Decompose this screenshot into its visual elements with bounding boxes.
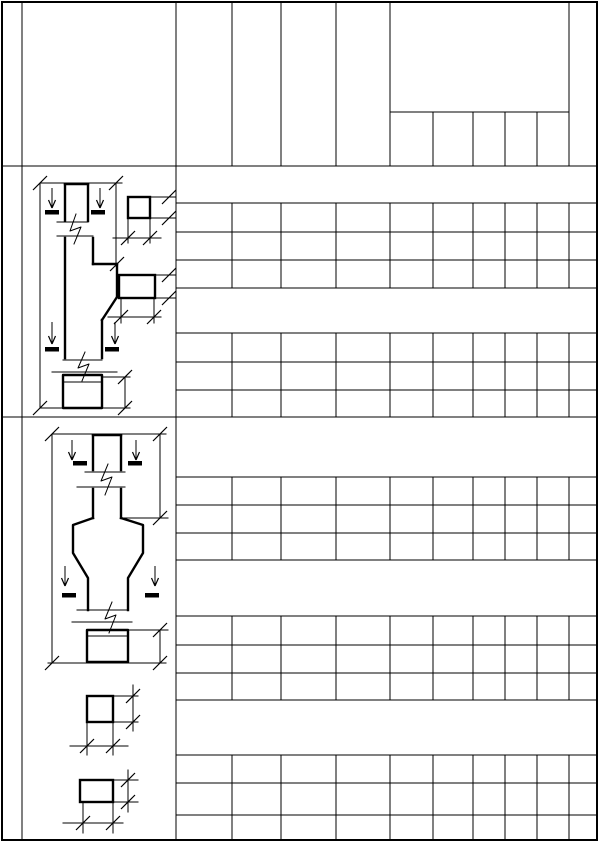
sheet-page xyxy=(0,0,601,842)
section-detail-corbel-1 xyxy=(108,268,176,324)
section-detail-shaft-2 xyxy=(70,685,140,755)
page-frame xyxy=(2,2,597,840)
page-grid xyxy=(2,2,597,840)
drawing-sheet xyxy=(0,0,601,842)
column-elevation-2 xyxy=(45,427,168,670)
title-block-grid xyxy=(232,2,569,166)
section-detail-shaft-1 xyxy=(113,190,176,245)
schedule-grid xyxy=(176,203,597,840)
section-detail-foot-2 xyxy=(63,770,138,833)
column-elevation-1 xyxy=(33,176,132,415)
